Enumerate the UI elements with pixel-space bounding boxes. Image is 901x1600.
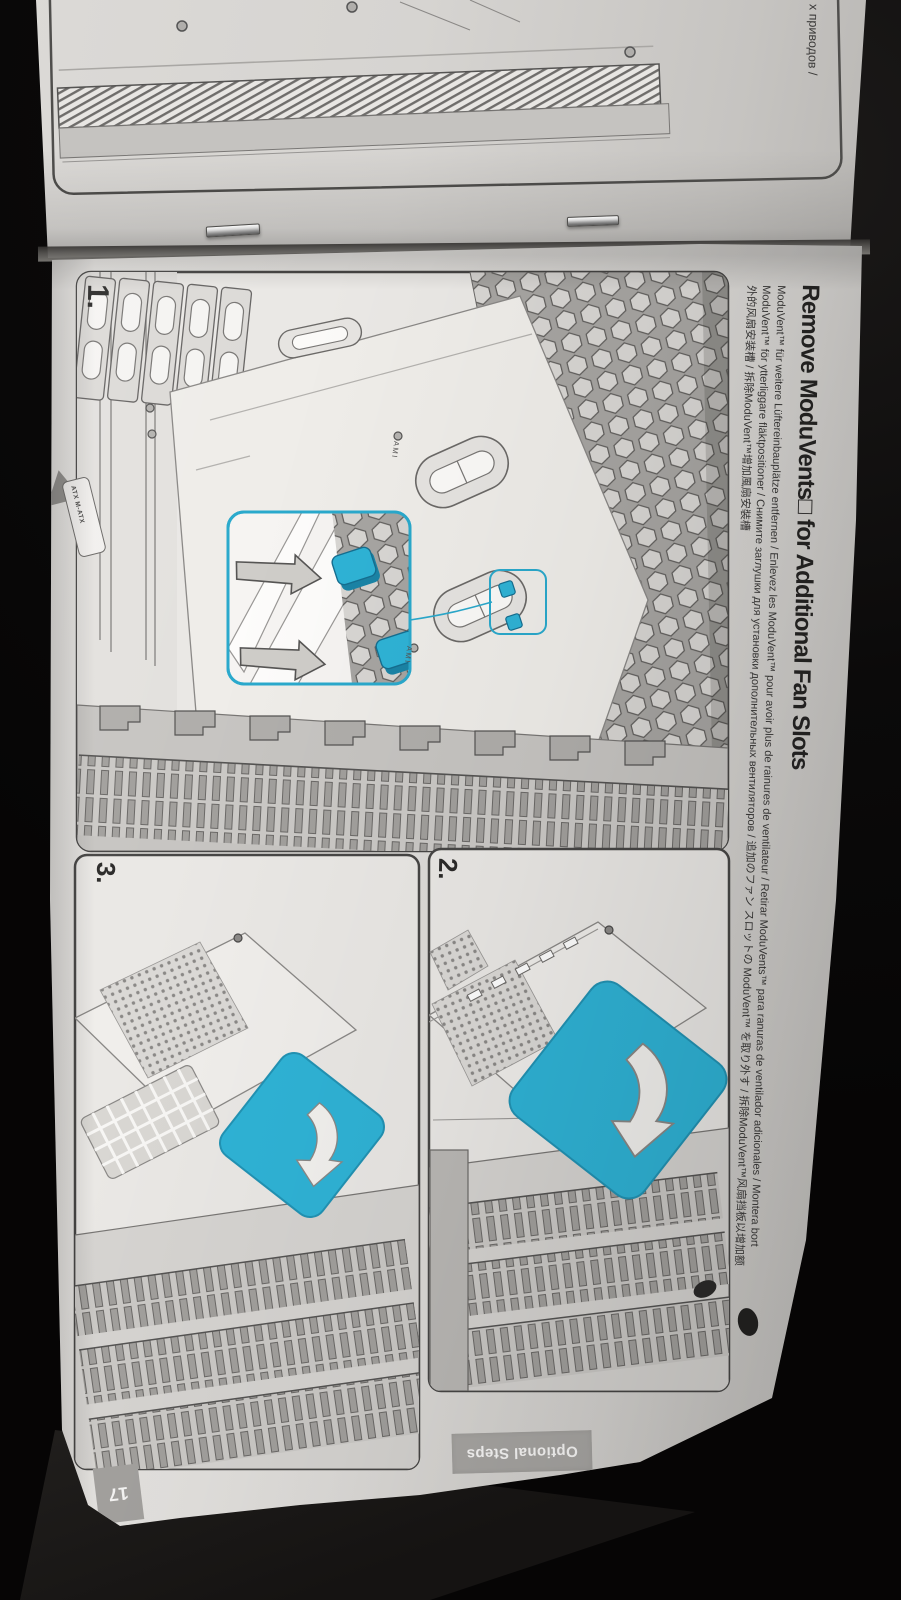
section-tab: Optional Steps: [452, 1430, 593, 1474]
box-1-illustration: [73, 272, 729, 869]
manual-photo: х приводов /: [0, 0, 901, 1600]
atx-label-text: ATX M-ATX: [69, 485, 85, 524]
section-tab-label: Optional Steps: [452, 1430, 593, 1474]
previous-page-text-fragment: х приводов /: [805, 4, 820, 76]
step-label-3: 3.: [90, 862, 121, 884]
previous-page-fragment: х приводов /: [0, 0, 901, 262]
step-label-2: 2.: [432, 858, 463, 880]
staple-right: [567, 215, 619, 227]
box-2-illustration: [425, 849, 740, 1391]
box-3-illustration: [70, 855, 432, 1479]
step-label-1: 1.: [80, 284, 114, 310]
page-margin-hole: [735, 1306, 760, 1338]
